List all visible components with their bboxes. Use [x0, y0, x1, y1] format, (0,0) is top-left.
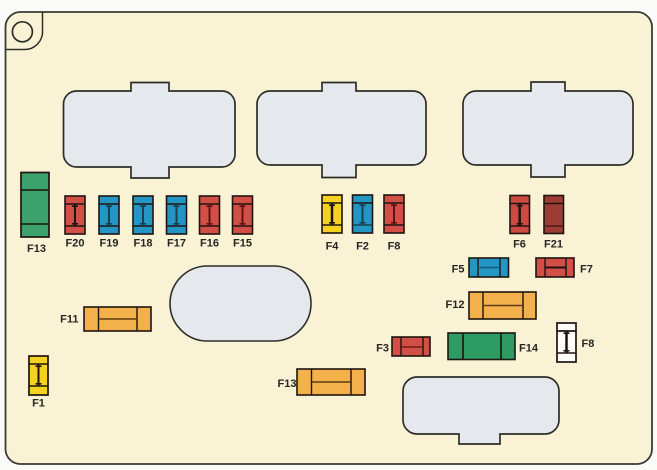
svg-text:F8: F8 — [582, 338, 595, 350]
svg-text:F1: F1 — [32, 398, 45, 410]
svg-text:F13: F13 — [27, 243, 46, 255]
svg-text:F21: F21 — [544, 239, 563, 251]
svg-text:F12: F12 — [446, 299, 465, 311]
svg-text:F11: F11 — [60, 314, 78, 326]
svg-text:F3: F3 — [376, 343, 389, 355]
svg-text:F5: F5 — [452, 264, 465, 276]
svg-text:F4: F4 — [326, 241, 340, 253]
svg-text:F19: F19 — [100, 238, 119, 250]
svg-text:F13: F13 — [278, 378, 297, 390]
svg-text:F16: F16 — [200, 238, 219, 250]
svg-text:F2: F2 — [356, 241, 369, 253]
svg-text:F15: F15 — [233, 238, 252, 250]
svg-text:F8: F8 — [388, 241, 401, 253]
svg-text:F7: F7 — [580, 264, 593, 276]
svg-text:F6: F6 — [513, 239, 526, 251]
svg-text:F14: F14 — [519, 343, 539, 355]
svg-text:F17: F17 — [167, 238, 186, 250]
svg-text:F18: F18 — [134, 238, 153, 250]
svg-text:F20: F20 — [66, 238, 85, 250]
